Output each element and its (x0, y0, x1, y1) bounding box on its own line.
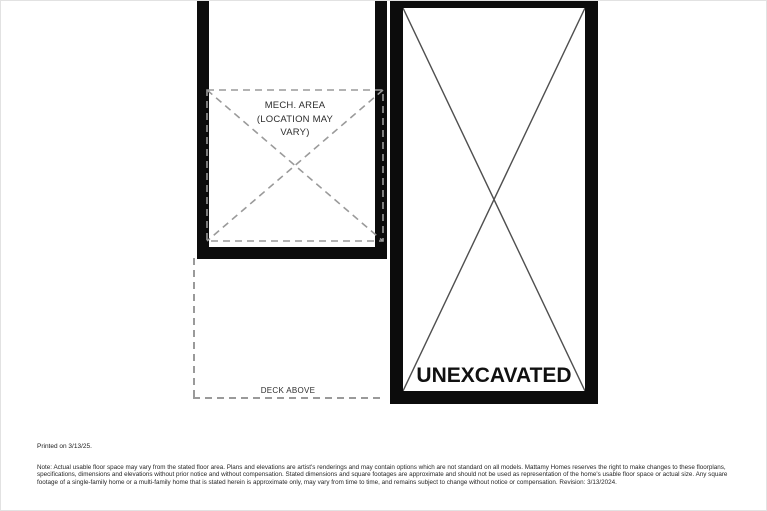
unexcavated-zone-walls: UNEXCAVATED (390, 0, 598, 404)
disclaimer-text: Note: Actual usable floor space may vary… (37, 464, 737, 486)
unexcavated-x-mark (403, 8, 585, 391)
printed-on-text: Printed on 3/13/25. (37, 443, 92, 450)
mech-area-label-line1: MECH. AREA (206, 99, 384, 113)
mech-area-label-line3: VARY) (206, 126, 384, 140)
unexcavated-label: UNEXCAVATED (403, 364, 585, 388)
mech-area-zone: MECH. AREA (LOCATION MAY VARY) (206, 89, 384, 242)
deck-outline-dashed-bottom (193, 397, 383, 399)
mech-area-label: MECH. AREA (LOCATION MAY VARY) (206, 99, 384, 140)
mech-area-label-line2: (LOCATION MAY (206, 113, 384, 127)
deck-outline-dashed-left (193, 258, 195, 399)
floor-plan-canvas: MECH. AREA (LOCATION MAY VARY) DECK ABOV… (0, 0, 767, 511)
deck-above-label: DECK ABOVE (193, 386, 383, 395)
